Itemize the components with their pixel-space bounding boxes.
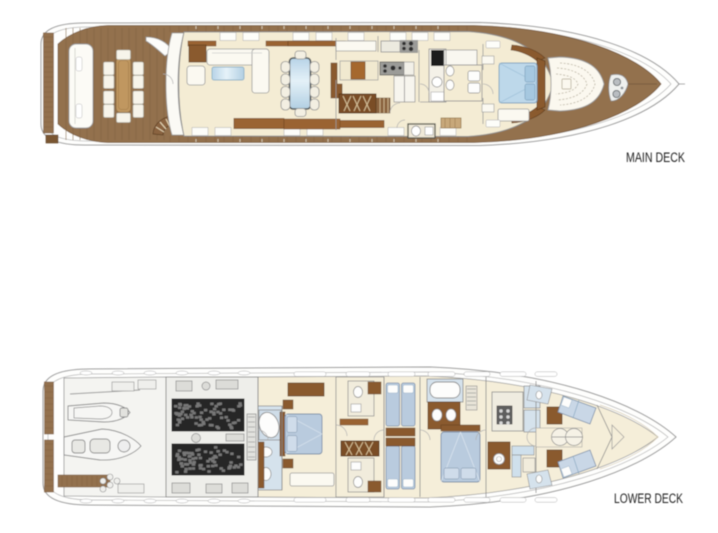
- svg-text:MAIN DECK: MAIN DECK: [626, 150, 685, 165]
- svg-text:LOWER DECK: LOWER DECK: [614, 491, 683, 506]
